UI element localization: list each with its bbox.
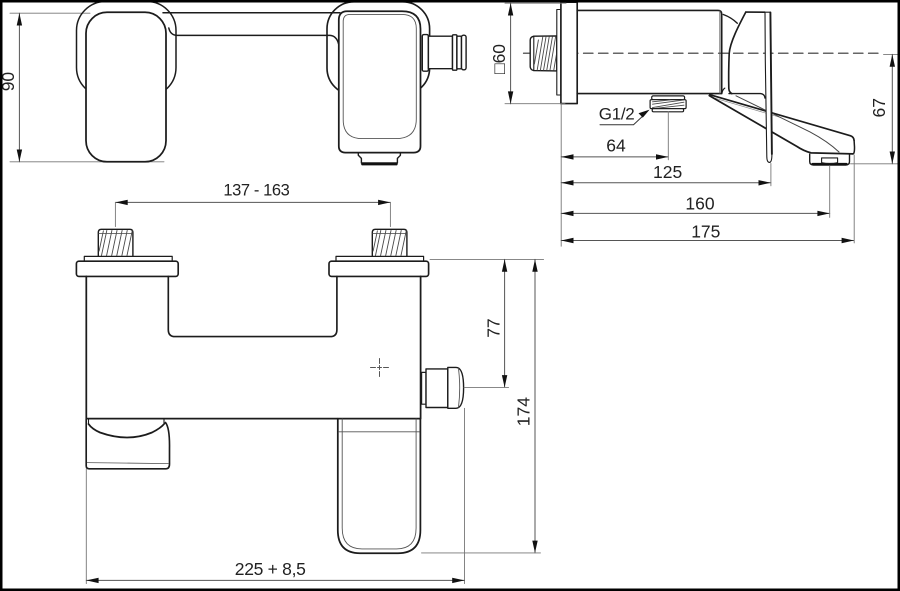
svg-text:90: 90 (0, 72, 18, 92)
svg-text:175: 175 (691, 221, 720, 241)
svg-text:64: 64 (606, 136, 626, 156)
svg-text:67: 67 (869, 98, 889, 117)
svg-text:125: 125 (653, 162, 682, 182)
svg-text:G1/2: G1/2 (599, 104, 635, 123)
svg-text:174: 174 (514, 397, 534, 426)
svg-text:77: 77 (483, 318, 503, 337)
svg-text:225 + 8,5: 225 + 8,5 (235, 559, 306, 579)
svg-text:□60: □60 (489, 44, 509, 74)
svg-text:160: 160 (685, 194, 714, 214)
svg-text:137 - 163: 137 - 163 (223, 182, 289, 200)
